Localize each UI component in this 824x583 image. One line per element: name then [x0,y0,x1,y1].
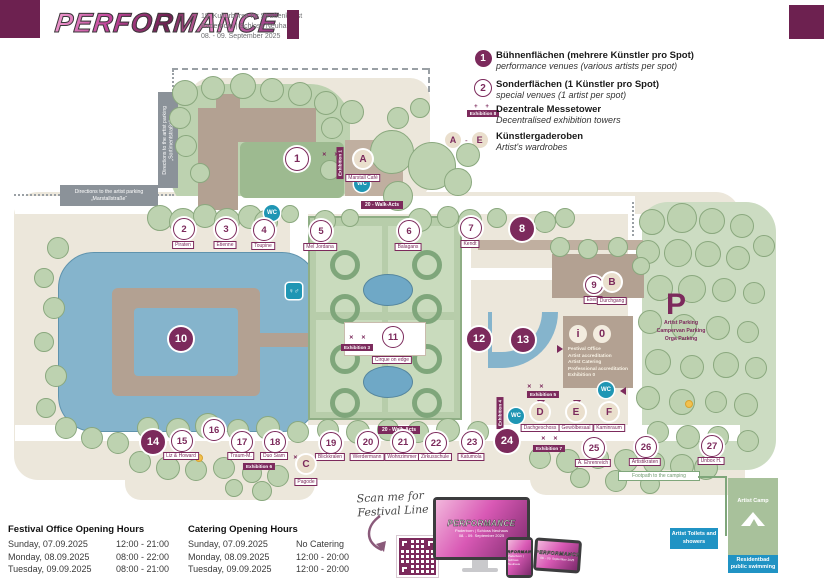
exhibition-badge: Exhibition 1 [337,147,344,179]
venue-spot-18: 18 [264,431,286,453]
tree-icon [225,479,243,497]
exhibition-badge: Exhibition 3 [341,344,373,351]
venue-spot-11: 11 [382,326,404,348]
venue-label-4: Toupine [251,242,275,250]
venue-label-2: Piraten [172,241,194,249]
tree-icon [632,257,650,275]
wardrobe-C: C [297,455,315,473]
wardrobe-label-C: Pagode [294,478,317,486]
hours-day: Monday, 08.09.2025 [188,551,296,564]
venue-spot-20: 20 [357,431,379,453]
tree-icon [753,235,775,257]
footpath-line [698,476,725,478]
venue-label-15: Liz & Howard [163,452,199,460]
wardrobe-label-A: Marstall Café [345,174,380,182]
venue-spot-21: 21 [392,431,414,453]
tree-icon [175,135,197,157]
venue-spot-7: 7 [460,217,482,239]
parking-line: Artist Parking [664,320,698,326]
tree-icon [172,80,198,106]
hours-row: Sunday, 07.09.2025No Catering [188,538,368,551]
venue-spot-6: 6 [398,220,420,242]
wardrobe-label-F: Kaminraum [593,424,625,432]
venue-spot-15: 15 [171,430,193,452]
exhibition-badge: Exhibition 6 [243,463,275,470]
catering-hours: Catering Opening Hours Sunday, 07.09.202… [188,524,368,576]
wardrobe-label-D: Dachgeschoss [521,424,560,432]
tree-icon [699,208,725,234]
tree-icon [169,107,191,129]
hours-time: 08:00 - 22:00 [116,551,169,564]
tree-icon [260,78,284,102]
hours-day: Monday, 08.09.2025 [8,551,116,564]
direction-arrow-icon [620,387,626,395]
hours-row: Sunday, 07.09.202512:00 - 21:00 [8,538,188,551]
tree-icon [43,297,65,319]
footpath-label: Footpath to the camping [618,471,700,481]
venue-label-26: Artistikraten [629,458,661,466]
tree-icon [81,427,103,449]
tree-icon [578,239,598,259]
parking-symbol: P [666,288,686,322]
screen-subtitle: Paderborn | Schloss Neuhaus [508,554,531,566]
hours-day: Tuesday, 09.09.2025 [8,563,116,576]
venue-spot-10: 10 [169,327,193,351]
wardrobe-F: F [600,403,618,421]
venue-spot-17: 17 [231,431,253,453]
monitor-base [462,568,498,572]
tree-icon [636,386,660,410]
venue-spot-22: 22 [425,432,447,454]
lamp-dot [685,400,693,408]
footpath-line [725,476,727,536]
info-line: Festival Office [568,347,601,352]
hours-row: Monday, 08.09.202508:00 - 22:00 [8,551,188,564]
hours-time: 08:00 - 21:00 [116,563,169,576]
tree-icon [387,107,409,129]
tree-icon [676,425,700,449]
direction-arrow-icon [557,345,563,353]
info-line: Professional accreditation [568,367,628,372]
venue-label-22: Zirkusschule [418,453,452,461]
info-line: Artist Catering [568,360,601,365]
venue-spot-8: 8 [510,217,534,241]
tree-icon [34,332,54,352]
venue-spot-4: 4 [253,219,275,241]
tent-door [750,519,758,526]
tree-icon [444,168,472,196]
tree-icon [287,421,309,443]
venue-label-25: A. Ehrenreich [575,459,611,467]
tree-icon [706,316,730,340]
tree-icon [667,203,697,233]
tower-marks: ✕ ✕ [527,384,547,390]
tree-icon [639,209,665,235]
tablet-mockup: PERFORMANCE 08. - 09. September 2025 [533,537,582,573]
tree-icon [340,100,364,124]
tree-icon [745,357,767,379]
info-line: Exhibition 0 [568,373,595,378]
tower-marks: ✕ ✕ [349,335,369,341]
artist-camp-label: Artist Camp [737,498,768,504]
hours-row: Tuesday, 09.09.202508:00 - 21:00 [8,563,188,576]
hours-time: No Catering [296,538,344,551]
venue-spot-2: 2 [173,218,195,240]
wc-badge: WC [508,408,524,424]
festival-office-hours: Festival Office Opening Hours Sunday, 07… [8,524,188,576]
exhibition-badge: Exhibition 7 [533,445,565,452]
venue-spot-3: 3 [215,218,237,240]
tree-icon [645,349,671,375]
hours-day: Sunday, 07.09.2025 [188,538,296,551]
hours-time: 12:00 - 20:00 [296,551,349,564]
tree-icon [213,457,235,479]
tree-icon [129,451,151,473]
venue-label-7: Kendt [460,240,479,248]
venue-label-18: Duo Siam [260,452,288,460]
wardrobe-D: D [531,403,549,421]
festival-map-page: PERFORMANCE 19. Kulturbörse für Straßenk… [0,0,824,583]
toilets-icon: ♀♂ [286,283,302,299]
tree-icon [680,355,704,379]
parking-line: Orga Parking [665,336,698,342]
tree-icon [341,209,359,227]
venue-spot-23: 23 [461,431,483,453]
tree-icon [47,237,69,259]
venue-spot-19: 19 [320,432,342,454]
tree-icon [321,117,343,139]
hours-row: Tuesday, 09.09.202512:00 - 20:00 [188,563,368,576]
tree-icon [193,204,217,228]
monitor-stand [472,560,488,568]
venue-spot-14: 14 [141,430,165,454]
tree-icon [534,211,556,233]
tree-icon [734,393,758,417]
tree-icon [743,282,765,304]
tree-icon [201,76,225,100]
exhibition-badge: Exhibition 5 [527,391,559,398]
hours-day: Tuesday, 09.09.2025 [188,563,296,576]
tower-marks: ✕ ✕ [541,436,561,442]
screen-subtitle: 08. - 09. September 2025 [459,533,504,538]
tree-icon [107,432,129,454]
venue-label-27: Unbox H. [698,457,725,465]
tree-icon [288,82,312,106]
tree-icon [281,205,299,223]
parking-line: Campervan Parking [657,328,706,334]
venue-label-23: Katumola [457,453,484,461]
wardrobe-A: A [354,150,372,168]
venue-label-11: Cirque on edge [372,356,412,364]
venue-spot-16: 16 [203,419,225,441]
venue-spot-27: 27 [701,435,723,457]
tree-icon [456,143,480,167]
venue-label-3: Etienne [214,241,237,249]
venue-label-6: Balagans [395,243,422,251]
tree-icon [36,398,56,418]
wardrobe-label-B: Durchgang [597,297,627,305]
tree-icon [695,241,721,267]
tree-icon [550,237,570,257]
qr-code [397,536,438,577]
venue-spot-25: 25 [583,437,605,459]
hours-title: Festival Office Opening Hours [8,524,188,535]
venue-spot-13: 13 [511,328,535,352]
info-circle-0: 0 [593,325,611,343]
hours-time: 12:00 - 20:00 [296,563,349,576]
venue-spot-5: 5 [310,220,332,242]
tree-icon [608,237,628,257]
hours-day: Sunday, 07.09.2025 [8,538,116,551]
tree-icon [314,91,338,115]
wc-badge: WC [598,382,614,398]
venue-label-20: Werdermann [350,453,385,461]
info-circle-i: i [569,325,587,343]
tree-icon [664,239,692,267]
tree-icon [45,365,67,387]
venue-spot-12: 12 [467,327,491,351]
curved-arrow-icon [358,514,398,556]
artist-toilets-box: Artist Toilets and showers [670,528,718,549]
venue-label-17: Traum-M. [227,452,254,460]
venue-spot-1: 1 [285,147,309,171]
tree-icon [570,468,590,488]
hours-time: 12:00 - 21:00 [116,538,169,551]
hours-row: Monday, 08.09.202512:00 - 20:00 [188,551,368,564]
tree-icon [437,206,459,228]
venue-label-5: Mel Jordana [303,243,337,251]
venue-spot-26: 26 [635,436,657,458]
screen-logo: PERFORMANCE [447,519,515,528]
residentbad-box: Residentbad public swimming [728,555,778,573]
hours-title: Catering Opening Hours [188,524,368,535]
venue-label-19: Blickkralen [315,453,345,461]
phone-mockup: PERFORMANCE Paderborn | Schloss Neuhaus [506,537,533,578]
venue-spot-24: 24 [495,429,519,453]
tree-icon [410,98,430,118]
tree-icon [737,321,759,343]
wardrobe-E: E [567,403,585,421]
venue-spot-9: 9 [585,276,603,294]
tree-icon [230,73,256,99]
tree-icon [712,278,736,302]
tree-icon [252,481,272,501]
exhibition-badge: Exhibition 4 [497,397,504,429]
tree-icon [705,391,727,413]
tree-icon [726,246,750,270]
wardrobe-B: B [603,273,621,291]
tree-icon [487,208,507,228]
tree-icon [737,430,759,452]
tree-icon [713,352,739,378]
venue-label-21: Wohnzimmer [384,453,419,461]
wardrobe-label-E: Gewölbesaal [559,424,594,432]
tree-icon [34,268,54,288]
tree-icon [185,459,207,481]
tree-icon [730,214,754,238]
tree-icon [55,417,77,439]
tree-icon [190,163,210,183]
walk-acts-badge: 20 - Walk-Acts [361,201,403,209]
tree-icon [555,208,575,228]
info-line: Artist accreditation [568,354,612,359]
